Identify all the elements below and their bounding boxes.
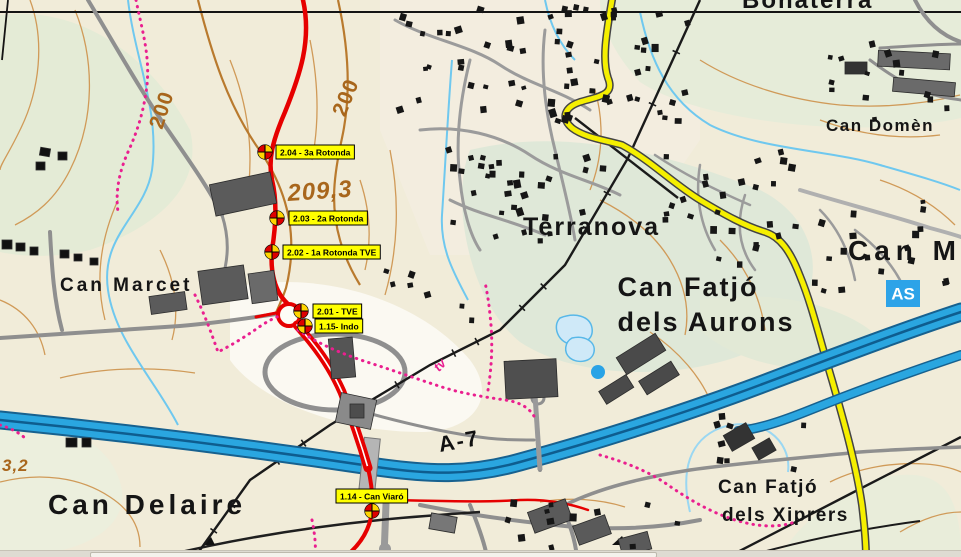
wp-1-15-label[interactable]: 1.15- Indo (315, 319, 363, 333)
label-bonaterra: Bonaterra (742, 0, 873, 14)
horizontal-scrollbar-thumb[interactable] (90, 552, 657, 557)
label-can-fatjo-xiprers-2: dels Xiprers (722, 505, 849, 526)
label-can-m: Can M (848, 235, 961, 266)
contour-200-b: 200 (328, 76, 364, 120)
wp-1-14-label[interactable]: 1.14 - Can Viaró (336, 489, 408, 503)
wp-1-14-marker[interactable] (365, 504, 379, 518)
topo-map-svg: BonaterraCan DomènCan MTerranovaCan Fatj… (0, 0, 961, 557)
motorway-shield-text: AS (891, 285, 915, 304)
wp-1-14-label-text: 1.14 - Can Viaró (340, 492, 404, 502)
spot-height-209: 209,3 (286, 176, 354, 208)
map-viewport[interactable]: BonaterraCan DomènCan MTerranovaCan Fatj… (0, 0, 961, 557)
label-can-fatjo-xiprers-1: Can Fatjó (718, 477, 818, 498)
wp-1-15-marker[interactable] (298, 319, 312, 333)
wp-2-01-label-text: 2.01 - TVE (317, 307, 358, 317)
pond-circle (591, 365, 605, 379)
wp-2-03-label[interactable]: 2.03 - 2a Rotonda (289, 211, 367, 225)
motorway-shield: AS (886, 280, 920, 307)
wp-2-02-label[interactable]: 2.02 - 1a Rotonda TVE (283, 245, 380, 259)
wp-2-04-marker[interactable] (258, 145, 272, 159)
wp-2-03-label-text: 2.03 - 2a Rotonda (293, 214, 364, 224)
wp-2-01-marker[interactable] (294, 304, 308, 318)
wp-2-04-label-text: 2.04 - 3a Rotonda (280, 148, 351, 158)
label-can-delaire: Can Delaire (48, 489, 246, 520)
label-can-domenec: Can Domèn (826, 116, 934, 135)
label-can-fatjo-aurons-2: dels Aurons (617, 307, 794, 337)
wp-2-02-marker[interactable] (265, 245, 279, 259)
horizontal-scrollbar[interactable] (0, 550, 961, 557)
spot-height-3-2: 3,2 (2, 456, 29, 475)
wp-2-02-label-text: 2.02 - 1a Rotonda TVE (287, 248, 377, 258)
wp-2-03-marker[interactable] (270, 211, 284, 225)
label-can-marcet: Can Marcet (60, 275, 192, 296)
wp-2-01-label[interactable]: 2.01 - TVE (313, 304, 362, 318)
wp-2-04-label[interactable]: 2.04 - 3a Rotonda (276, 145, 354, 159)
label-terranova: Terranova (523, 213, 660, 241)
wp-1-15-label-text: 1.15- Indo (319, 322, 359, 332)
label-can-fatjo-aurons-1: Can Fatjó (617, 272, 758, 302)
